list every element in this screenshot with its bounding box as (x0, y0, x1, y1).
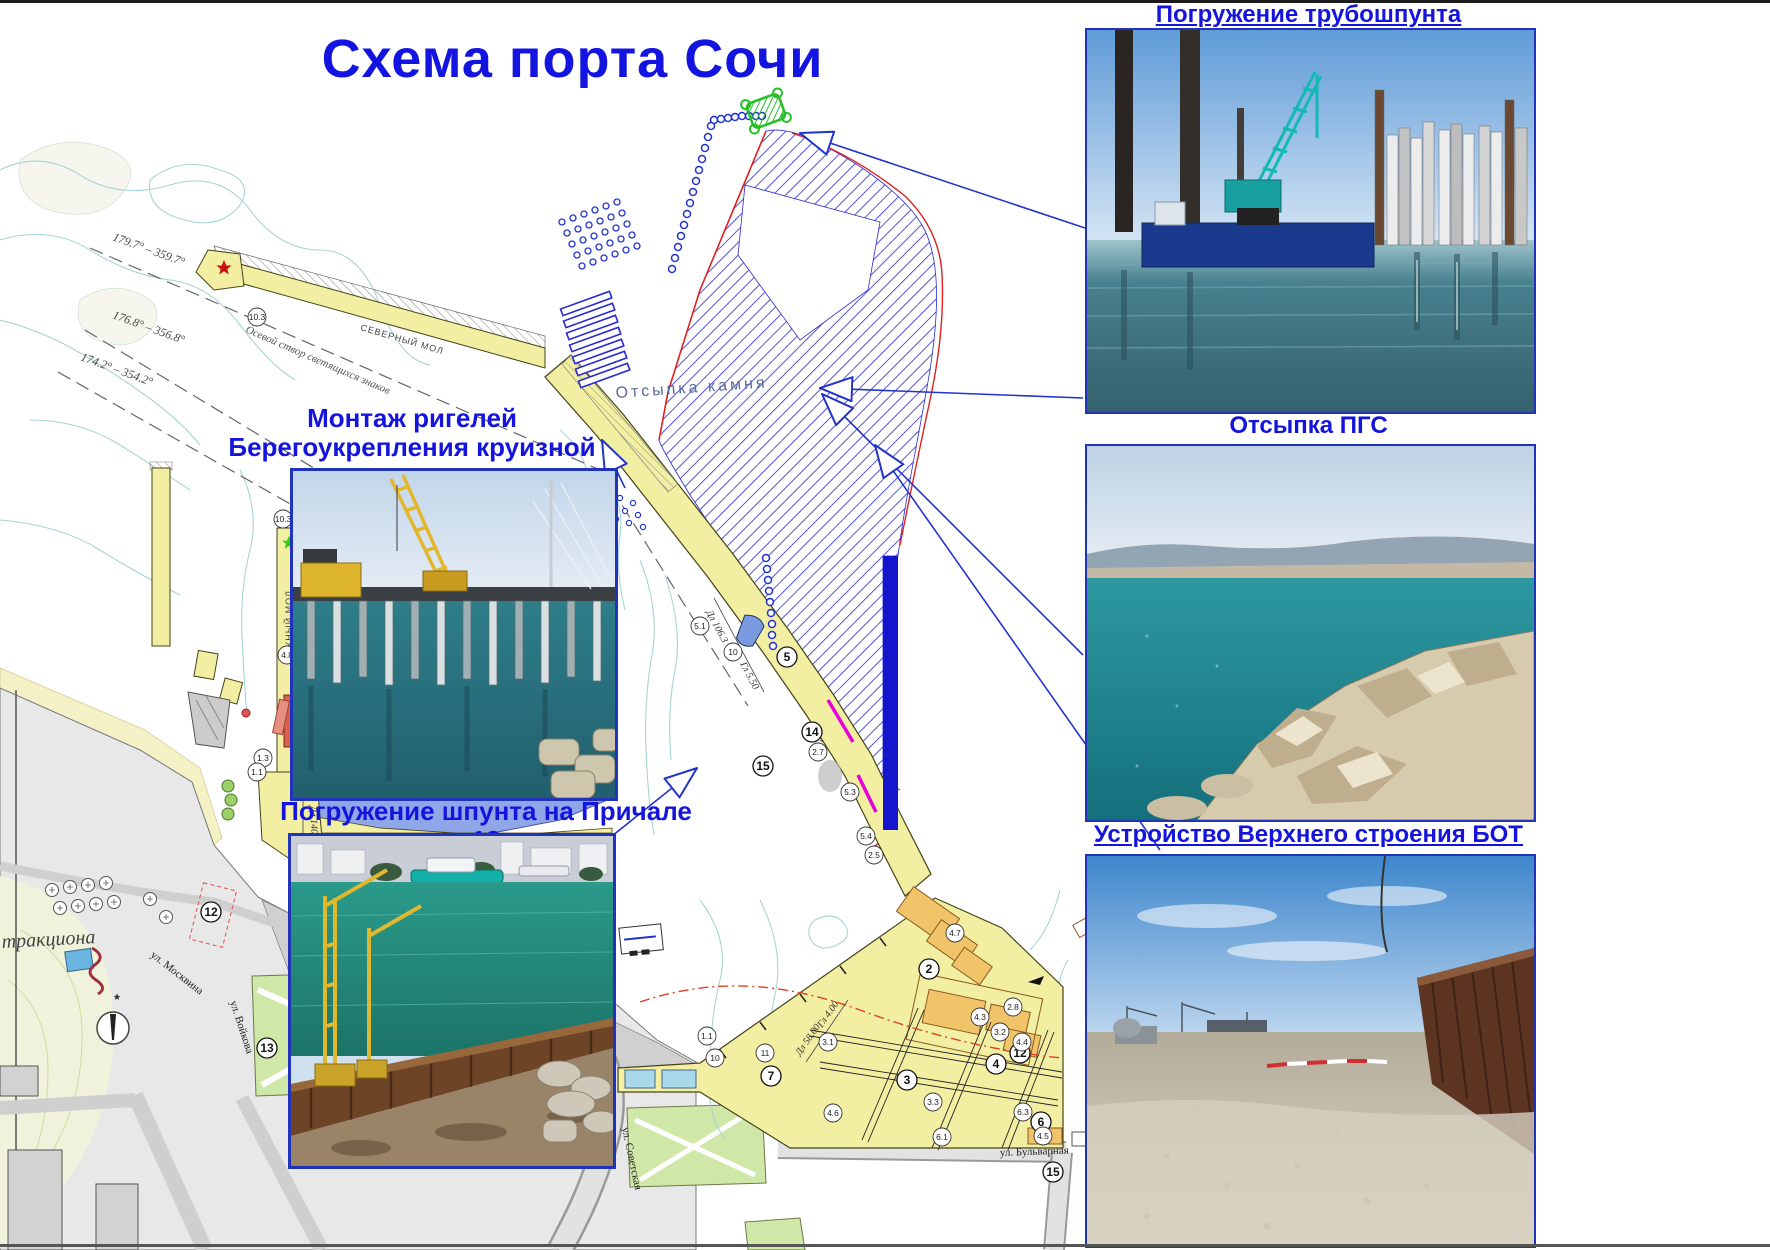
bearing-label-1: 179.7° – 359.7° (111, 230, 187, 269)
svg-text:1.1: 1.1 (701, 1031, 713, 1041)
map-marker: 5.3 (841, 783, 859, 801)
svg-text:5.3: 5.3 (844, 787, 856, 797)
map-marker: 3.2 (991, 1023, 1009, 1041)
photo-bot-superstructure (1085, 854, 1536, 1248)
svg-text:Гл 5.50: Гл 5.50 (737, 659, 761, 691)
map-marker: 7 (761, 1066, 781, 1086)
svg-text:15: 15 (1046, 1165, 1060, 1179)
map-marker: 15 (1043, 1162, 1063, 1182)
svg-text:3: 3 (904, 1073, 911, 1087)
caption-pgs-fill: Отсыпка ПГС (1085, 412, 1532, 440)
page-title: Схема порта Сочи (300, 28, 845, 90)
map-marker: 10.3 (248, 308, 266, 326)
map-marker: 3.3 (924, 1093, 942, 1111)
map-marker: 2.5 (865, 846, 883, 864)
map-marker: 2 (919, 959, 939, 979)
svg-text:13: 13 (260, 1041, 274, 1055)
svg-text:4.7: 4.7 (949, 928, 961, 938)
label-crossbeam-line1: Монтаж ригелей (192, 404, 632, 433)
map-marker: 6.1 (933, 1128, 951, 1146)
map-marker: 14 (802, 722, 822, 742)
svg-text:4.6: 4.6 (827, 1108, 839, 1118)
map-marker: 4.6 (824, 1104, 842, 1122)
svg-text:4.4: 4.4 (1016, 1037, 1028, 1047)
svg-text:2.7: 2.7 (812, 747, 824, 757)
svg-text:4.3: 4.3 (974, 1012, 986, 1022)
svg-text:5.4: 5.4 (860, 831, 872, 841)
svg-text:2.8: 2.8 (1007, 1002, 1019, 1012)
map-marker: 4.7 (946, 924, 964, 942)
svg-text:10: 10 (710, 1053, 720, 1063)
svg-text:11: 11 (761, 1048, 770, 1058)
svg-text:4: 4 (993, 1057, 1000, 1071)
svg-text:1.3: 1.3 (257, 753, 269, 763)
svg-text:12: 12 (204, 905, 218, 919)
svg-text:3.3: 3.3 (927, 1097, 939, 1107)
photo-pgs-fill (1085, 444, 1536, 822)
svg-text:3.1: 3.1 (822, 1037, 834, 1047)
map-marker: 3.1 (819, 1033, 837, 1051)
svg-text:5: 5 (784, 650, 791, 664)
svg-text:15: 15 (756, 759, 770, 773)
entrance-structure (740, 87, 792, 135)
map-marker: 2.8 (1004, 998, 1022, 1016)
map-marker: 10 (706, 1049, 724, 1067)
top-border (0, 0, 1770, 3)
bottom-border (0, 1244, 1770, 1247)
svg-text:4.5: 4.5 (1037, 1131, 1049, 1141)
svg-text:1.1: 1.1 (251, 767, 263, 777)
map-marker: 10 (724, 643, 742, 661)
map-marker: 1.1 (698, 1027, 716, 1045)
map-marker: 1.1 (248, 763, 266, 781)
map-marker: 4.4 (1013, 1033, 1031, 1051)
photo-pipe-pile-driving (1085, 28, 1536, 414)
rock-fill-area (659, 130, 943, 848)
svg-text:2: 2 (926, 962, 933, 976)
svg-text:10: 10 (728, 647, 738, 657)
map-marker: 11 (756, 1044, 774, 1062)
svg-text:10.3: 10.3 (249, 312, 266, 322)
caption-bot-superstructure: Устройство Верхнего строения БОТ (1085, 821, 1532, 849)
svg-text:7: 7 (768, 1069, 775, 1083)
photo-sheet-piling-berth13 (288, 833, 616, 1169)
svg-text:2.5: 2.5 (868, 850, 880, 860)
svg-text:3.2: 3.2 (994, 1027, 1006, 1037)
svg-text:6.1: 6.1 (936, 1132, 948, 1142)
map-marker: 12 (201, 902, 221, 922)
map-marker: 5 (777, 647, 797, 667)
map-marker: 4.5 (1034, 1127, 1052, 1145)
map-marker: 4.3 (971, 1008, 989, 1026)
map-marker: 2.7 (809, 743, 827, 761)
map-marker: 13 (257, 1038, 277, 1058)
map-marker: 5.1 (691, 617, 709, 635)
caption-pipe-pile-driving: Погружение трубошпунта (1085, 1, 1532, 29)
svg-text:ул. Бульварная: ул. Бульварная (1000, 1145, 1069, 1159)
svg-text:6.3: 6.3 (1017, 1107, 1029, 1117)
svg-text:14: 14 (805, 725, 819, 739)
map-marker: 4 (986, 1054, 1006, 1074)
map-marker: 15 (753, 756, 773, 776)
map-marker: 5.4 (857, 827, 875, 845)
port-scheme-page: 179.7° – 359.7° 176.8° – 356.8° 174.2° –… (0, 0, 1770, 1250)
map-marker: 3 (897, 1070, 917, 1090)
bearing-label-3: 174.2° – 354.2° (79, 350, 155, 389)
svg-text:5.1: 5.1 (694, 621, 706, 631)
map-marker: 6.3 (1014, 1103, 1032, 1121)
photo-crossbeam-installation (290, 468, 618, 801)
